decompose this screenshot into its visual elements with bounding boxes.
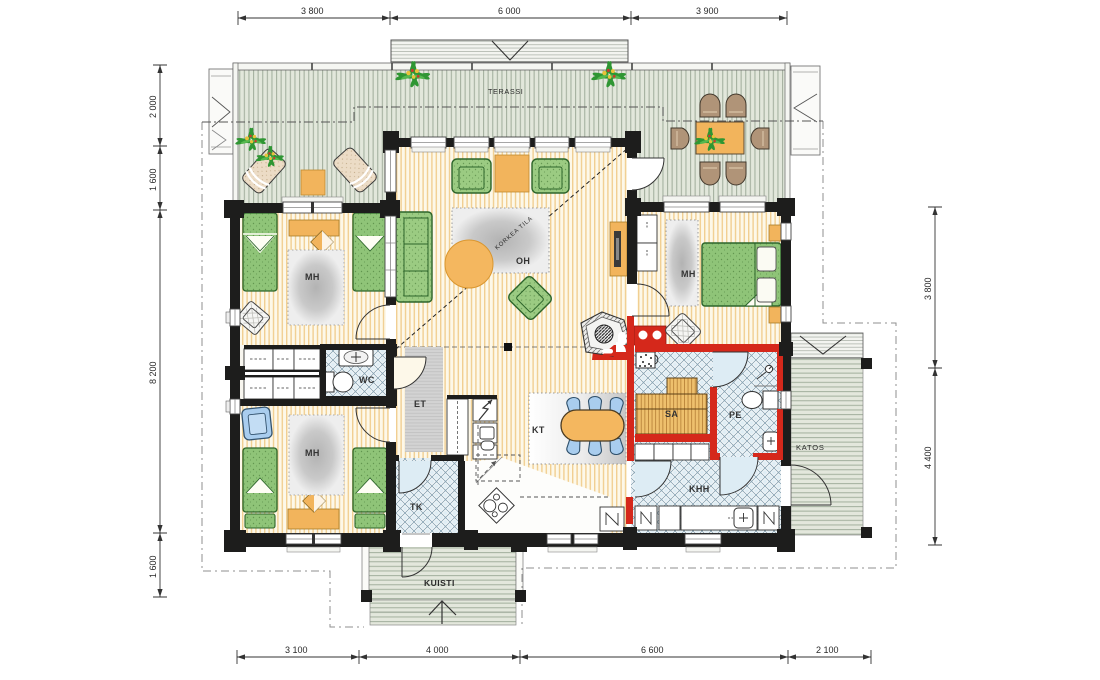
svg-text:3 900: 3 900 bbox=[696, 6, 719, 16]
svg-text:8 200: 8 200 bbox=[148, 361, 158, 384]
svg-text:KT: KT bbox=[532, 425, 545, 435]
svg-text:1 600: 1 600 bbox=[148, 168, 158, 191]
svg-text:WC: WC bbox=[359, 375, 375, 385]
svg-text:KUISTI: KUISTI bbox=[424, 578, 455, 588]
svg-text:4 000: 4 000 bbox=[426, 645, 449, 655]
svg-text:3 800: 3 800 bbox=[923, 277, 933, 300]
svg-text:6 000: 6 000 bbox=[498, 6, 521, 16]
svg-text:3 100: 3 100 bbox=[285, 645, 308, 655]
svg-text:TK: TK bbox=[410, 502, 423, 512]
svg-text:TERASSI: TERASSI bbox=[488, 87, 523, 96]
svg-text:KATOS: KATOS bbox=[796, 443, 825, 452]
svg-text:MH: MH bbox=[305, 448, 320, 458]
svg-text:OH: OH bbox=[516, 256, 530, 266]
svg-text:ET: ET bbox=[414, 399, 426, 409]
svg-text:MH: MH bbox=[305, 272, 320, 282]
svg-text:1 600: 1 600 bbox=[148, 555, 158, 578]
svg-text:4 400: 4 400 bbox=[923, 446, 933, 469]
svg-text:KHH: KHH bbox=[689, 484, 710, 494]
svg-text:3 800: 3 800 bbox=[301, 6, 324, 16]
svg-text:SA: SA bbox=[665, 409, 678, 419]
svg-text:2 000: 2 000 bbox=[148, 95, 158, 118]
svg-text:PE: PE bbox=[729, 410, 742, 420]
svg-text:2 100: 2 100 bbox=[816, 645, 839, 655]
svg-text:6 600: 6 600 bbox=[641, 645, 664, 655]
svg-text:MH: MH bbox=[681, 269, 696, 279]
